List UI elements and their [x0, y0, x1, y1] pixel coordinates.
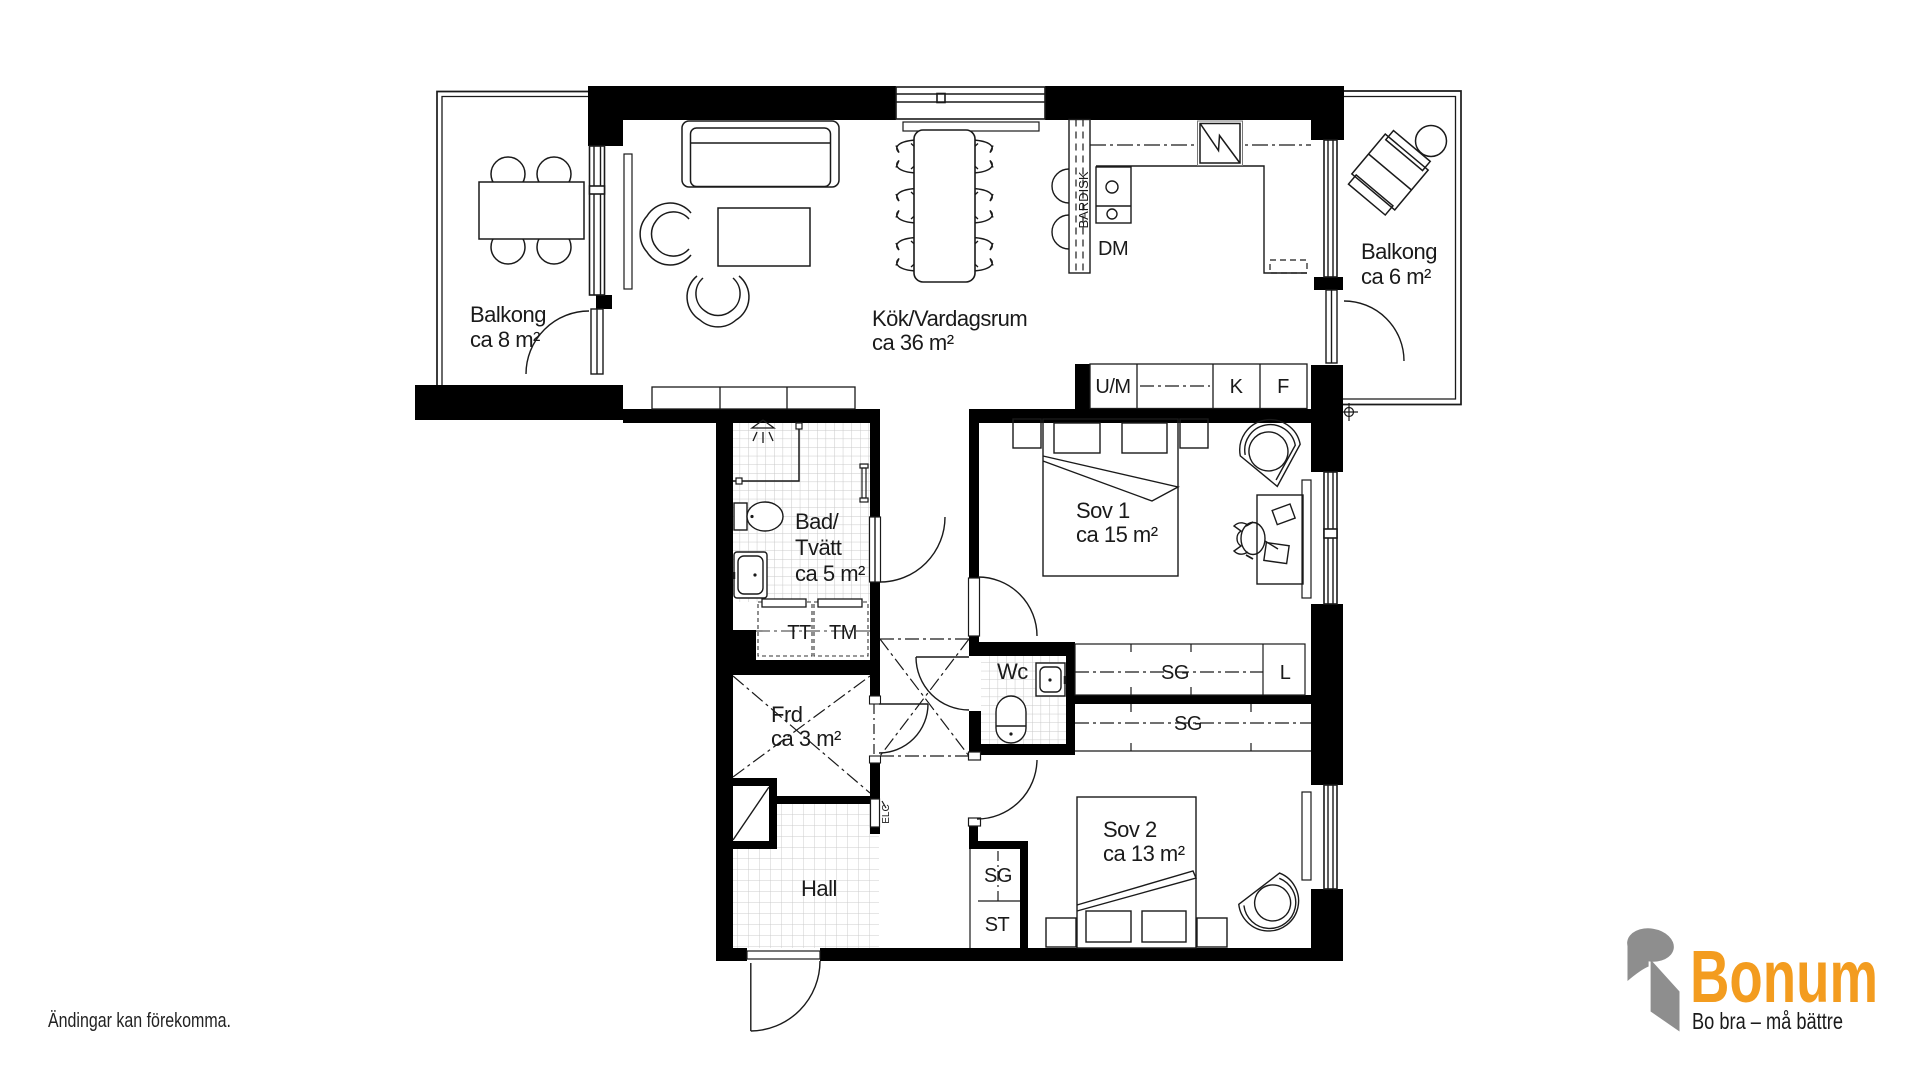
svg-text:SG: SG [1161, 662, 1189, 684]
svg-text:TT: TT [787, 622, 811, 644]
svg-text:ca 3 m²: ca 3 m² [771, 726, 841, 751]
svg-text:Bonum: Bonum [1690, 935, 1878, 1018]
svg-text:ca 15 m²: ca 15 m² [1076, 522, 1158, 547]
svg-text:ST: ST [985, 914, 1010, 936]
svg-text:TM: TM [829, 622, 857, 644]
svg-text:Frd: Frd [771, 702, 803, 727]
svg-text:K: K [1230, 376, 1244, 398]
svg-text:ca 6 m²: ca 6 m² [1361, 264, 1431, 289]
svg-text:ELC: ELC [881, 804, 892, 823]
svg-text:Ändingar kan förekomma.: Ändingar kan förekomma. [48, 1010, 231, 1032]
svg-text:U/M: U/M [1095, 376, 1130, 398]
svg-text:Tvätt: Tvätt [795, 535, 842, 560]
svg-text:Bo bra – må bättre: Bo bra – må bättre [1692, 1008, 1843, 1034]
svg-text:ca 13 m²: ca 13 m² [1103, 841, 1185, 866]
svg-text:SG: SG [984, 865, 1012, 887]
svg-text:Sov 1: Sov 1 [1076, 498, 1130, 523]
svg-text:SG: SG [1174, 713, 1202, 735]
svg-text:ca 36 m²: ca 36 m² [872, 330, 954, 355]
svg-text:Balkong: Balkong [470, 302, 546, 327]
svg-text:BARDISK: BARDISK [1076, 171, 1091, 228]
svg-text:Hall: Hall [801, 876, 837, 901]
svg-text:Wc: Wc [997, 659, 1028, 684]
svg-text:Bad/: Bad/ [795, 509, 840, 534]
svg-text:L: L [1280, 662, 1291, 684]
svg-text:DM: DM [1098, 238, 1128, 260]
svg-text:Balkong: Balkong [1361, 239, 1437, 264]
svg-text:ca 8 m²: ca 8 m² [470, 327, 540, 352]
svg-text:Sov 2: Sov 2 [1103, 817, 1157, 842]
svg-text:Kök/Vardagsrum: Kök/Vardagsrum [872, 306, 1027, 331]
svg-text:ca 5 m²: ca 5 m² [795, 561, 865, 586]
svg-text:F: F [1277, 376, 1289, 398]
